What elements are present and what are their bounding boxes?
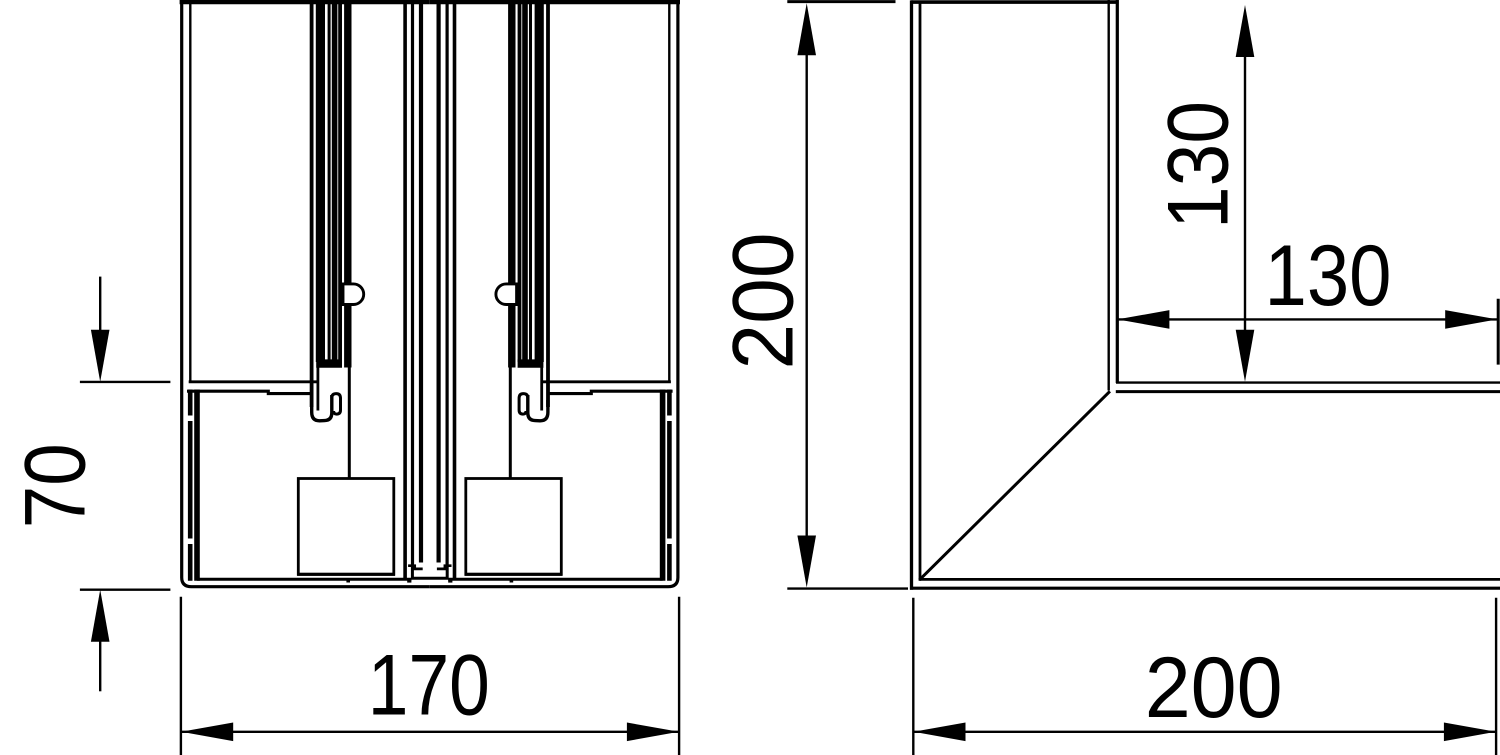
- svg-text:130: 130: [1151, 101, 1247, 229]
- svg-text:200: 200: [1145, 640, 1283, 736]
- svg-text:200: 200: [715, 233, 811, 370]
- svg-text:170: 170: [368, 637, 490, 733]
- svg-text:70: 70: [8, 443, 104, 528]
- svg-text:130: 130: [1265, 228, 1392, 324]
